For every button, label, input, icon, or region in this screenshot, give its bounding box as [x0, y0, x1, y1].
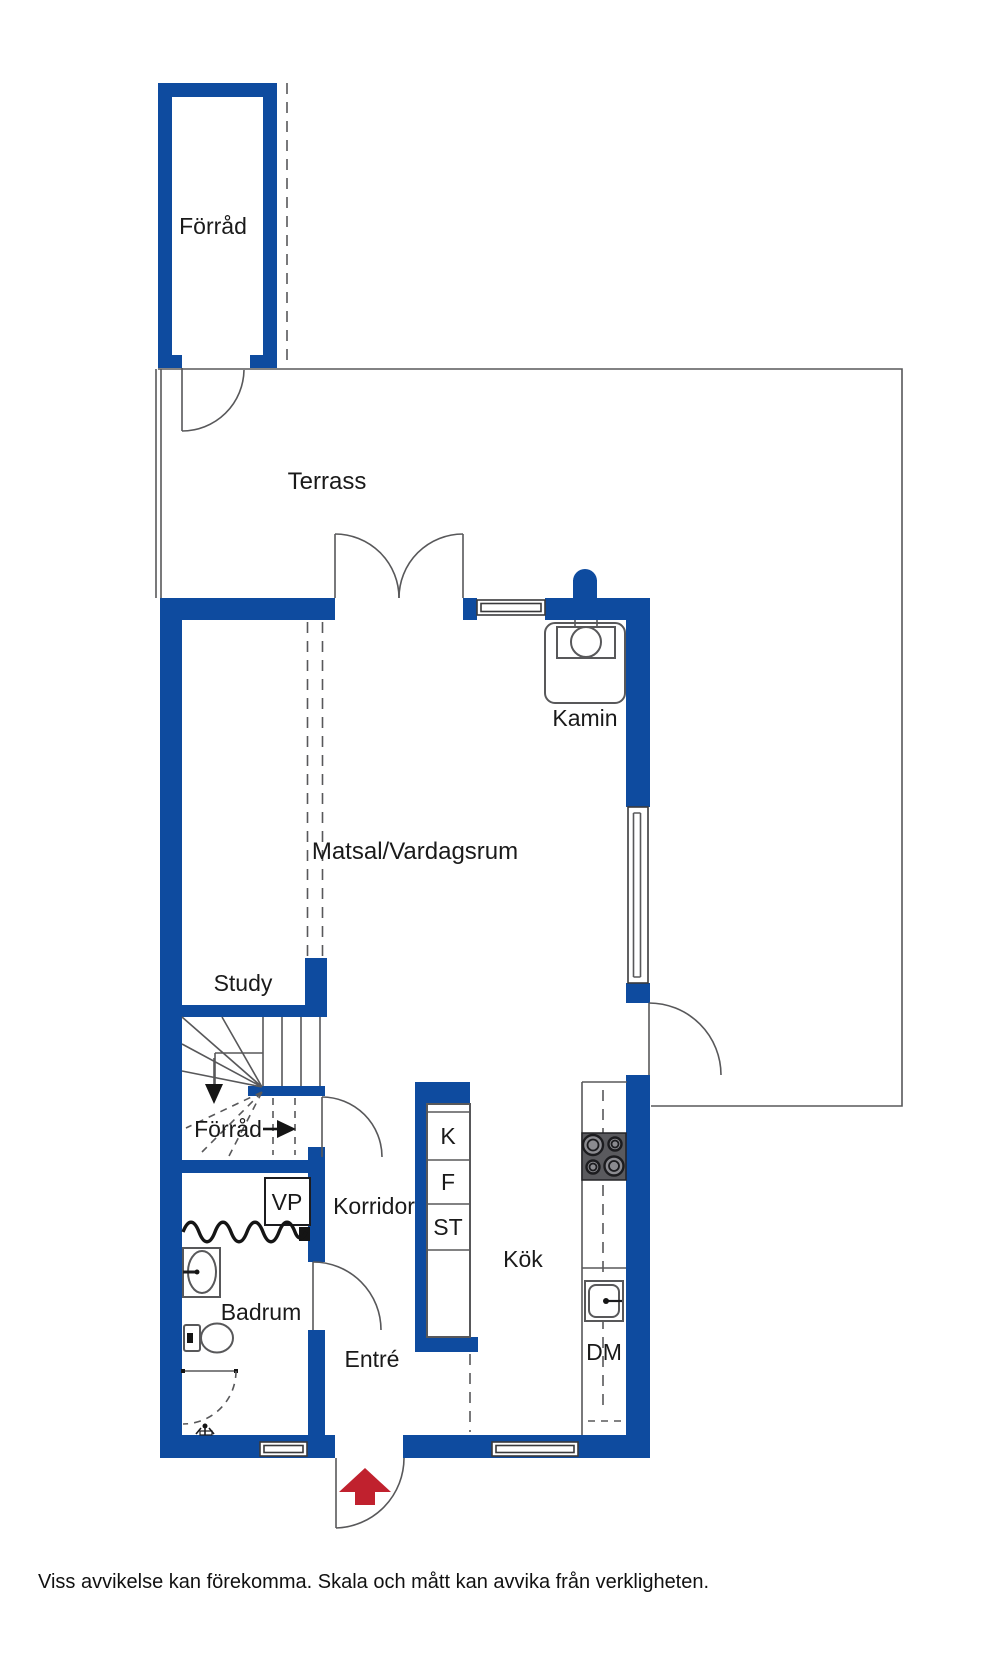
room-label-storage-under-stairs: Förråd [194, 1116, 262, 1142]
window-east-wall [628, 807, 648, 983]
bathroom-door [313, 1262, 381, 1330]
appliance-label-pantry: ST [433, 1214, 462, 1240]
appliance-label-dishwasher: DM [586, 1339, 622, 1365]
stove-icon [582, 1133, 626, 1180]
storage-arrow-icon [263, 1120, 296, 1138]
floor-plan: Förråd Terrass Kamin Matsal/Vardagsrum S… [0, 0, 995, 1679]
appliance-label-freezer: F [441, 1169, 455, 1195]
chimney [573, 569, 597, 600]
fireplace-icon [545, 620, 625, 703]
doors [313, 534, 721, 1528]
storage-building [158, 83, 287, 431]
room-label-entrance: Entré [345, 1346, 400, 1372]
storage-door-arc [182, 368, 244, 431]
living-study-divider [308, 622, 323, 958]
disclaimer-text: Viss avvikelse kan förekomma. Skala och … [38, 1571, 709, 1593]
shower-icon [181, 1369, 238, 1435]
french-doors-terrace [335, 534, 463, 598]
stair-winder-fan [182, 1017, 262, 1087]
east-terrace-door [649, 1003, 721, 1075]
window-top-wall [477, 600, 545, 615]
window-bottom-right [492, 1442, 578, 1456]
room-label-fireplace: Kamin [552, 705, 617, 731]
room-label-storage-top: Förråd [179, 213, 247, 239]
room-label-living-dining: Matsal/Vardagsrum [312, 838, 518, 865]
appliance-label-heat-pump: VP [272, 1189, 303, 1215]
stair-treads [263, 1017, 320, 1086]
room-label-corridor: Korridor [333, 1193, 415, 1219]
bathroom-sink-icon [183, 1248, 220, 1297]
room-label-bathroom: Badrum [221, 1299, 302, 1325]
room-label-terrace: Terrass [288, 468, 367, 495]
window-bottom-left [260, 1442, 307, 1456]
entrance-arrow-icon [339, 1468, 391, 1505]
room-label-study: Study [214, 970, 273, 996]
kitchen-sink-icon [585, 1281, 623, 1321]
understairs-storage-door [322, 1097, 382, 1157]
room-label-kitchen: Kök [503, 1246, 543, 1272]
appliance-label-fridge: K [440, 1123, 456, 1149]
toilet-icon [184, 1324, 233, 1353]
shower-head [196, 1424, 214, 1436]
